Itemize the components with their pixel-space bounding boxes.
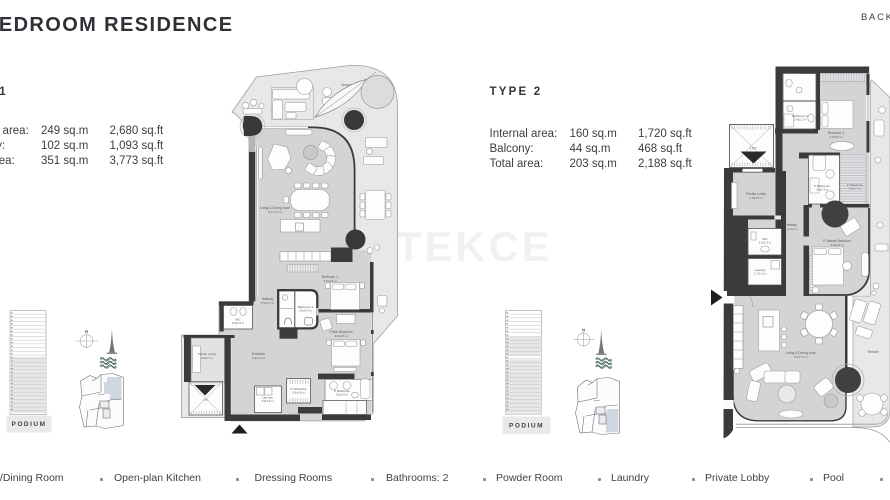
svg-text:5.9x1.7 m: 5.9x1.7 m <box>261 301 275 305</box>
svg-text:3.0x2.4 m: 3.0x2.4 m <box>201 356 214 360</box>
svg-text:5.5x7.6 m: 5.5x7.6 m <box>794 355 808 359</box>
svg-text:N: N <box>582 328 585 333</box>
svg-text:2.9x2.8 m: 2.9x2.8 m <box>749 196 763 200</box>
svg-text:4.0x3.0 m: 4.0x3.0 m <box>829 135 843 139</box>
svg-text:Terrace: Terrace <box>867 350 878 354</box>
svg-text:3.6x2.6 m: 3.6x2.6 m <box>336 393 349 397</box>
svg-text:1.1x4.2 m: 1.1x4.2 m <box>784 227 798 231</box>
svg-text:4.9x2.2 m: 4.9x2.2 m <box>252 356 266 360</box>
svg-text:LIFT: LIFT <box>750 147 757 151</box>
svg-text:2.6x1.6 m: 2.6x1.6 m <box>261 399 274 403</box>
svg-text:2.4x2.1 m: 2.4x2.1 m <box>794 118 807 122</box>
svg-text:2.6x2.6 m: 2.6x2.6 m <box>292 391 305 395</box>
svg-text:1.6x1.3 m: 1.6x1.3 m <box>759 241 772 245</box>
svg-text:3.8x1.7 m: 3.8x1.7 m <box>849 187 862 191</box>
svg-text:4.9x3.6 m: 4.9x3.6 m <box>830 243 844 247</box>
svg-text:1.7x1.2 m: 1.7x1.2 m <box>754 272 767 276</box>
svg-text:2.9x1.0 m: 2.9x1.0 m <box>232 321 245 325</box>
svg-text:6.1x7.4 m: 6.1x7.4 m <box>268 210 282 214</box>
svg-text:3.8x2.3 m: 3.8x2.3 m <box>816 188 829 192</box>
svg-text:3.9x4.5 m: 3.9x4.5 m <box>334 334 348 338</box>
svg-text:Lift: Lift <box>203 398 207 402</box>
svg-text:PODIUM: PODIUM <box>12 421 47 428</box>
svg-text:2.6x3.4 m: 2.6x3.4 m <box>299 309 312 313</box>
svg-text:N: N <box>85 329 88 334</box>
svg-text:PODIUM: PODIUM <box>509 423 544 430</box>
